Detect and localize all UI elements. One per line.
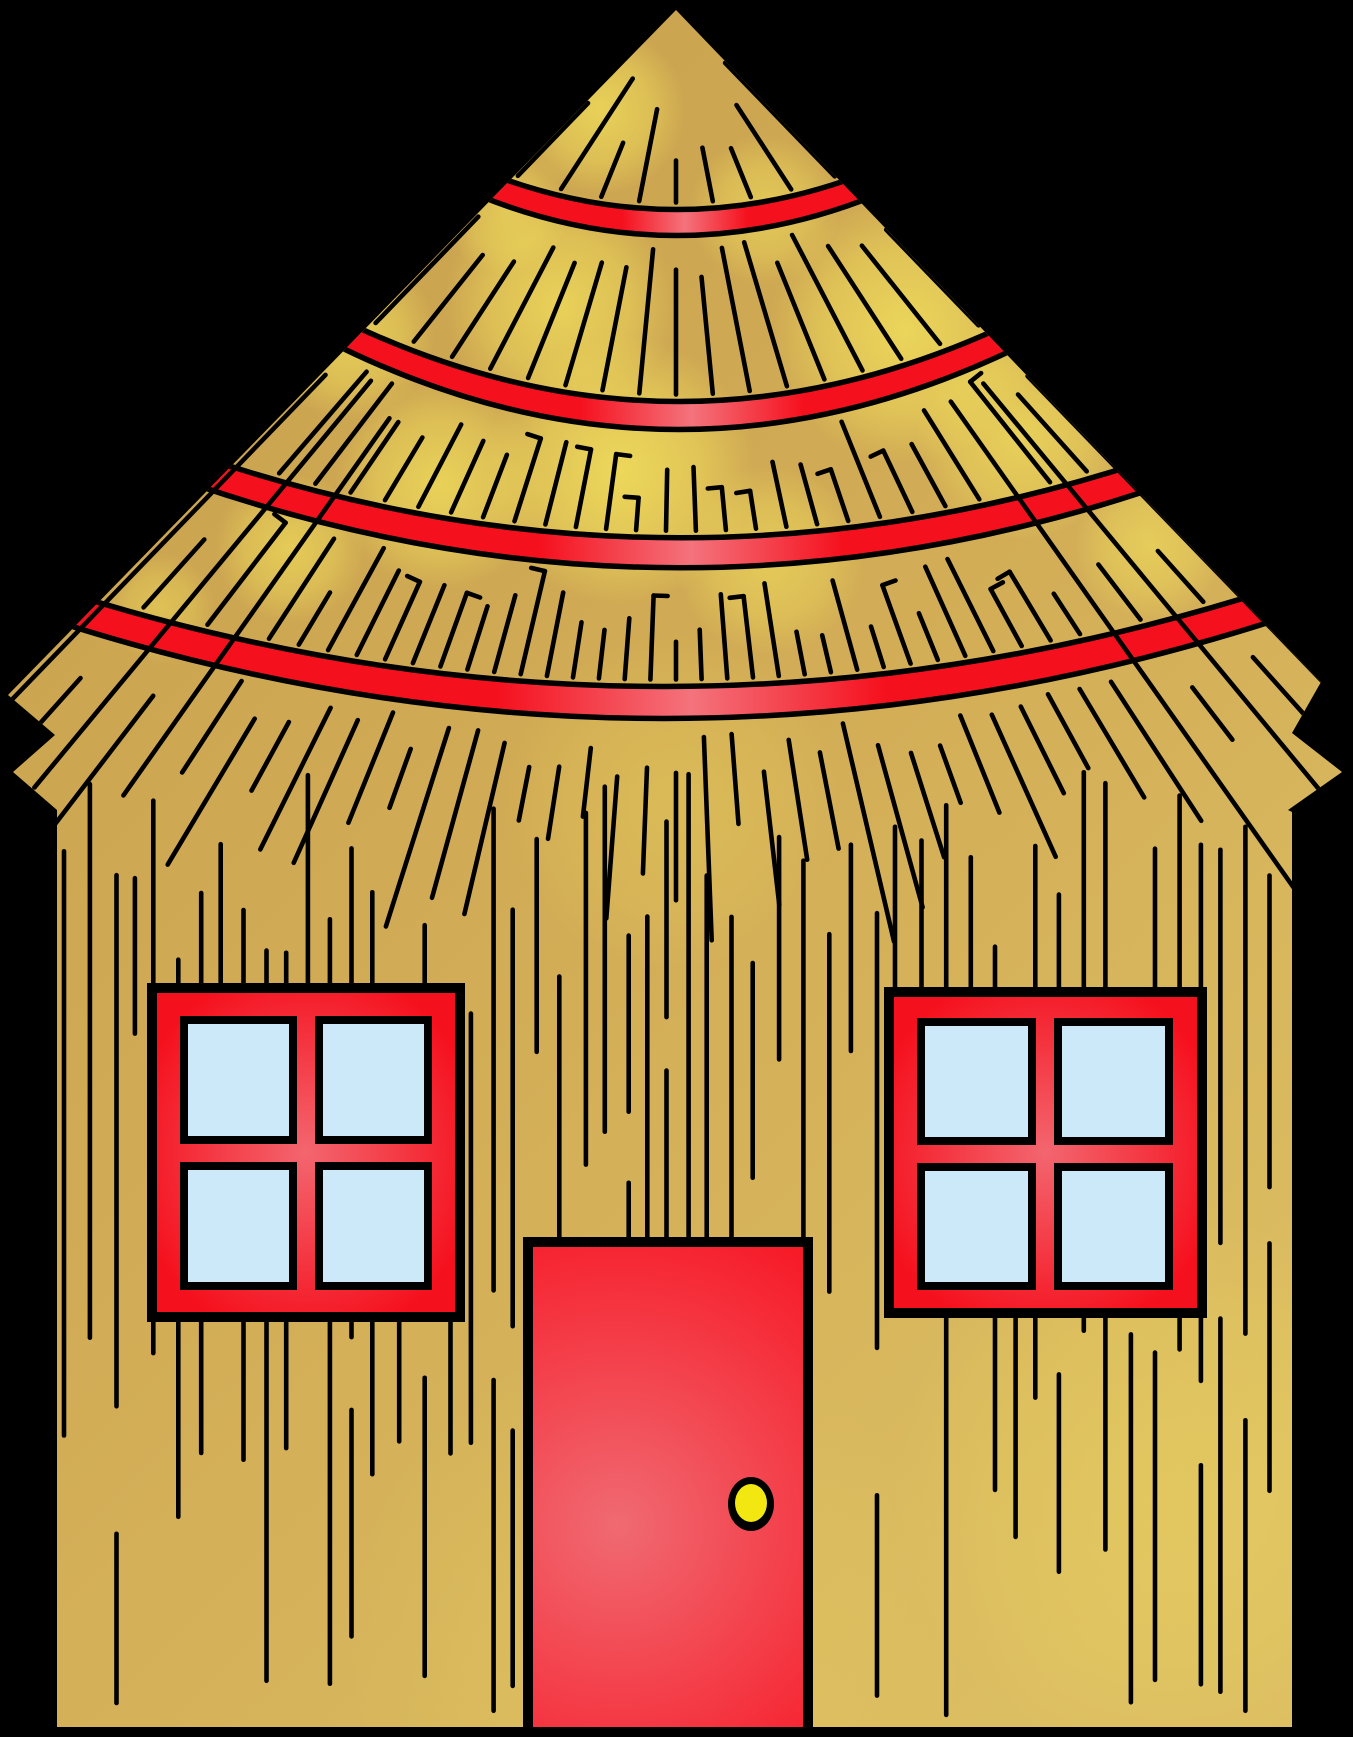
window-pane [323, 1024, 424, 1136]
window-pane [1062, 1171, 1165, 1282]
window-left [147, 983, 465, 1322]
roof-straw-hook [531, 568, 545, 571]
window-pane [323, 1170, 424, 1282]
roof-straw-hook [654, 596, 668, 597]
window-right [884, 987, 1207, 1318]
window-pane [1062, 1026, 1165, 1137]
roof-straw-strand [650, 596, 653, 680]
front-door [523, 1237, 813, 1727]
roof-straw-hook [625, 497, 639, 498]
window-pane [188, 1024, 289, 1136]
window-pane [925, 1026, 1028, 1137]
roof-straw-strand [700, 630, 702, 679]
roof-straw-strand [666, 470, 667, 531]
roof-straw-hook [577, 447, 591, 450]
window-pane [925, 1171, 1028, 1282]
doorknob-icon [735, 1484, 767, 1522]
roof-straw-hook [616, 454, 630, 456]
roof-straw-hook [736, 491, 750, 493]
roof-straw-strand [636, 498, 639, 530]
window-pane [188, 1170, 289, 1282]
scene-canvas: Cartoon thatched straw house on a black … [0, 0, 1353, 1737]
straw-house-illustration: Cartoon thatched straw house on a black … [0, 0, 1353, 1737]
roof-straw-hook [708, 487, 722, 488]
roof-straw-strand [694, 467, 696, 531]
roof-straw-hook [730, 596, 744, 598]
